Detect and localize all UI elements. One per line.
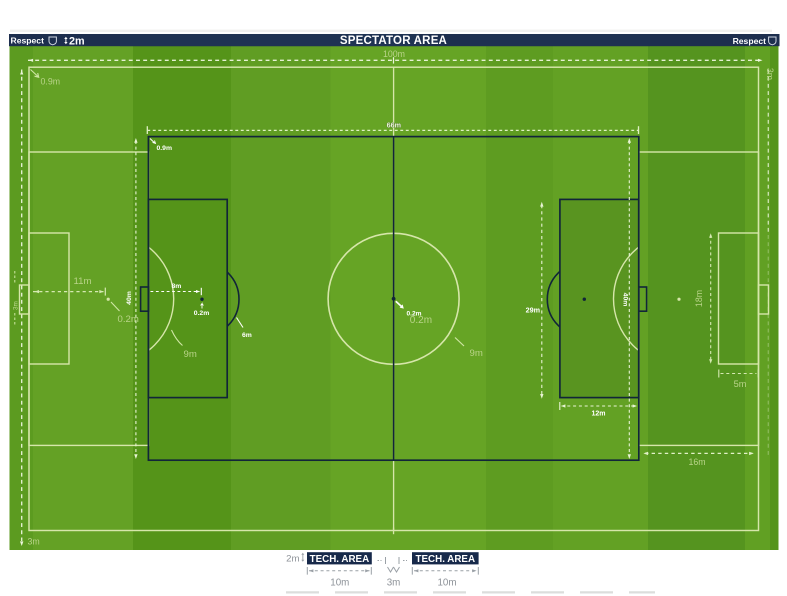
svg-text:10m: 10m — [437, 577, 456, 588]
svg-text:6m: 6m — [242, 332, 252, 339]
svg-text:2m: 2m — [286, 554, 299, 565]
svg-text:3m: 3m — [13, 301, 20, 310]
svg-text:TECH. AREA: TECH. AREA — [416, 554, 476, 565]
svg-text:40m: 40m — [126, 291, 133, 305]
svg-text:0.2m: 0.2m — [410, 315, 432, 326]
svg-text:12m: 12m — [591, 410, 605, 417]
svg-text:16m: 16m — [688, 457, 705, 467]
svg-text:29m: 29m — [526, 306, 540, 315]
svg-text:100m: 100m — [383, 49, 405, 59]
svg-text:SPECTATOR AREA: SPECTATOR AREA — [340, 35, 447, 47]
svg-text:9m: 9m — [184, 349, 197, 360]
svg-text:3m: 3m — [387, 577, 401, 588]
svg-text:0.9m: 0.9m — [41, 77, 61, 87]
svg-text:3m: 3m — [28, 536, 40, 546]
svg-text:0.9m: 0.9m — [157, 145, 173, 152]
svg-text:11m: 11m — [74, 276, 92, 287]
svg-text:9m: 9m — [470, 348, 483, 359]
svg-text:3m: 3m — [765, 68, 775, 80]
svg-text:8m: 8m — [172, 283, 182, 290]
svg-text:10m: 10m — [330, 577, 349, 588]
svg-text:5m: 5m — [734, 379, 747, 389]
svg-text:18m: 18m — [694, 290, 704, 307]
svg-text:40m: 40m — [621, 293, 628, 307]
svg-text:Respect: Respect — [11, 36, 45, 46]
svg-text:Respect: Respect — [733, 36, 767, 46]
svg-text:66m: 66m — [387, 120, 401, 129]
svg-text:TECH. AREA: TECH. AREA — [310, 554, 370, 565]
svg-text:2m: 2m — [69, 36, 85, 48]
svg-text:0.2m: 0.2m — [194, 310, 210, 317]
